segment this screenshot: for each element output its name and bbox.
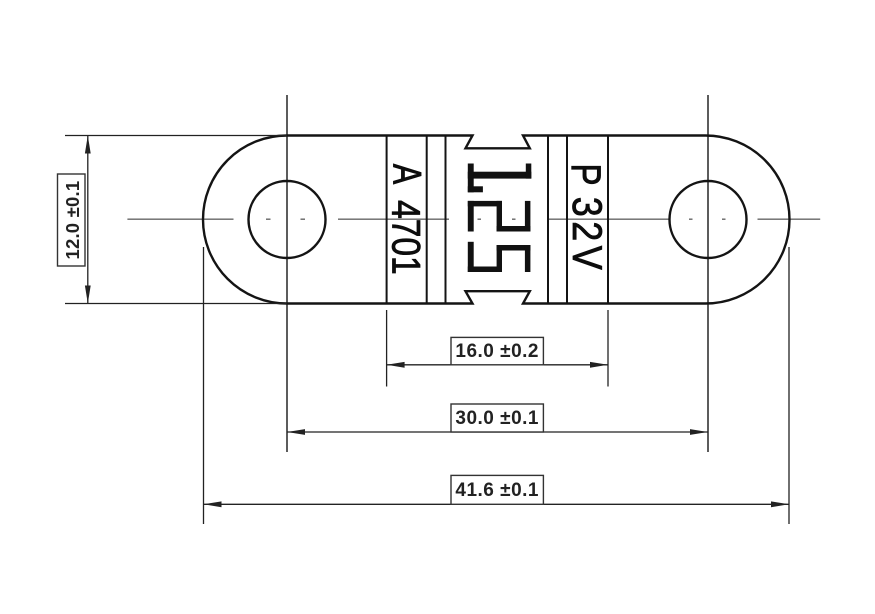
svg-text:A: A bbox=[385, 164, 429, 185]
svg-text:30.0 ±0.1: 30.0 ±0.1 bbox=[455, 408, 539, 429]
svg-text:12.0 ±0.1: 12.0 ±0.1 bbox=[62, 181, 83, 260]
svg-text:P: P bbox=[563, 163, 609, 185]
svg-text:4701: 4701 bbox=[384, 200, 429, 275]
svg-text:41.6 ±0.1: 41.6 ±0.1 bbox=[455, 480, 539, 501]
svg-text:32V: 32V bbox=[564, 197, 610, 275]
svg-text:16.0 ±0.2: 16.0 ±0.2 bbox=[455, 341, 539, 362]
